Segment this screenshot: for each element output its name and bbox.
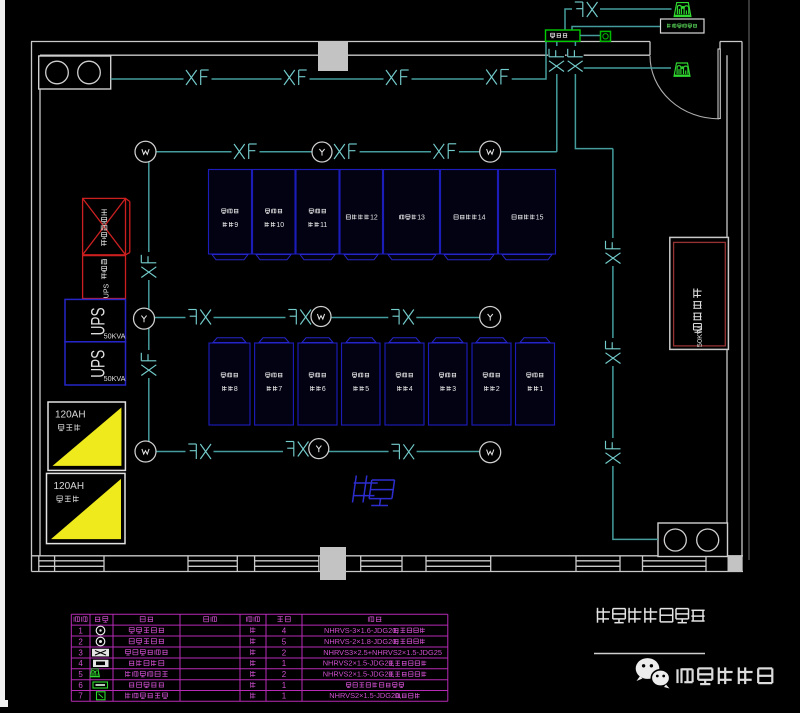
svg-text:NHRVS-3×1.6-JDG20,: NHRVS-3×1.6-JDG20,	[324, 626, 398, 635]
svg-text:4: 4	[282, 626, 287, 635]
svg-text:NHRVS3×2.5+NHRVS2×1.5-JDG25: NHRVS3×2.5+NHRVS2×1.5-JDG25	[323, 648, 442, 657]
svg-text:4: 4	[78, 659, 83, 668]
svg-text:6: 6	[322, 386, 326, 393]
svg-text:3: 3	[78, 648, 83, 657]
svg-text:1: 1	[78, 626, 83, 635]
svg-text:1: 1	[282, 659, 287, 668]
svg-text:8: 8	[234, 386, 238, 393]
svg-text:1: 1	[282, 681, 287, 690]
svg-text:11: 11	[320, 222, 327, 229]
svg-text:5: 5	[78, 670, 83, 679]
svg-text:120AH: 120AH	[55, 410, 86, 421]
svg-text:50KVA: 50KVA	[104, 374, 126, 383]
svg-text:4: 4	[409, 386, 413, 393]
svg-text:NHRVS2×1.5-JDG20,: NHRVS2×1.5-JDG20,	[323, 659, 395, 668]
svg-text:120AH: 120AH	[54, 481, 85, 492]
svg-text:2: 2	[496, 386, 500, 393]
svg-text:2: 2	[78, 637, 83, 646]
svg-text:2: 2	[282, 648, 287, 657]
svg-text:10: 10	[276, 222, 284, 229]
svg-text:14: 14	[478, 214, 486, 221]
svg-text:2: 2	[282, 670, 287, 679]
svg-text:NHRVS2×1.5-JDG20,: NHRVS2×1.5-JDG20,	[329, 691, 401, 700]
svg-text:50KVA: 50KVA	[104, 331, 126, 340]
svg-text:9: 9	[234, 222, 238, 229]
svg-text:6: 6	[78, 681, 83, 690]
svg-text:1: 1	[539, 386, 543, 393]
svg-text:5: 5	[365, 386, 369, 393]
svg-text:NHRVS-2×1.8-JDG20,: NHRVS-2×1.8-JDG20,	[324, 637, 398, 646]
svg-text:3: 3	[452, 386, 456, 393]
svg-text:50KW: 50KW	[695, 326, 704, 347]
svg-text:12: 12	[370, 214, 378, 221]
svg-text:5: 5	[282, 637, 287, 646]
svg-text:13: 13	[417, 214, 425, 221]
svg-text:1: 1	[282, 692, 287, 701]
svg-text:NHRVS2×1.5-JDG20,: NHRVS2×1.5-JDG20,	[323, 670, 395, 679]
svg-text:7: 7	[278, 386, 282, 393]
svg-text:15: 15	[536, 214, 544, 221]
svg-text:UPS: UPS	[104, 283, 111, 298]
svg-text:7: 7	[78, 692, 83, 701]
